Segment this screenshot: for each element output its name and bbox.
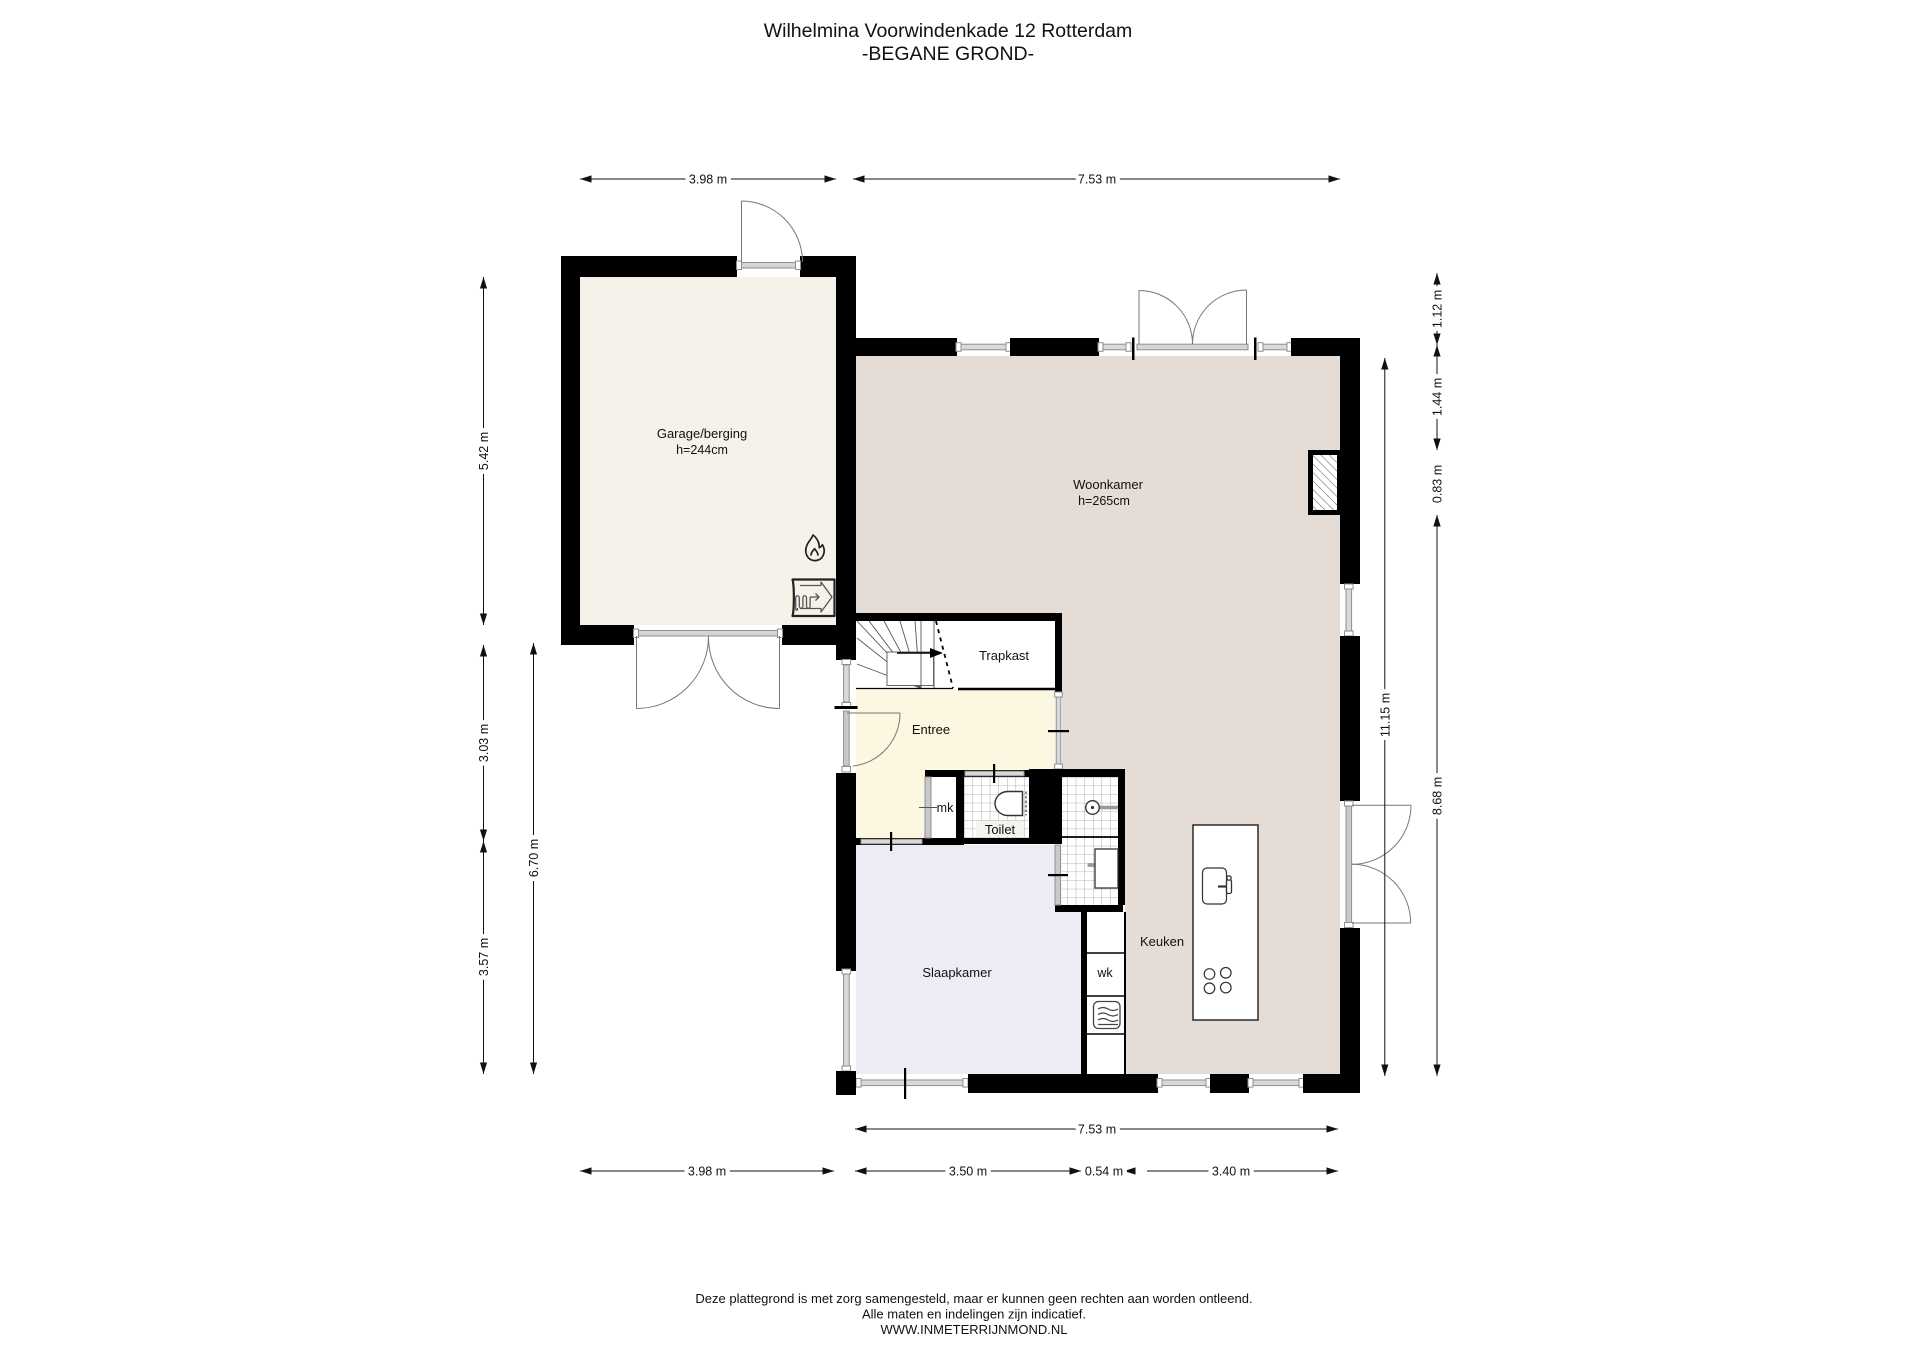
- svg-text:1.44 m: 1.44 m: [1431, 378, 1445, 416]
- svg-text:wk: wk: [1096, 966, 1113, 980]
- svg-text:Woonkamer: Woonkamer: [1073, 477, 1144, 492]
- svg-text:8.68 m: 8.68 m: [1431, 777, 1445, 815]
- svg-text:Alle maten en indelingen zijn: Alle maten en indelingen zijn indicatief…: [862, 1307, 1086, 1322]
- svg-text:3.98 m: 3.98 m: [688, 1165, 726, 1179]
- svg-text:WWW.INMETERRIJNMOND.NL: WWW.INMETERRIJNMOND.NL: [880, 1322, 1067, 1337]
- svg-text:Entree: Entree: [912, 722, 950, 737]
- svg-text:3.57 m: 3.57 m: [477, 938, 491, 976]
- svg-text:11.15 m: 11.15 m: [1378, 693, 1392, 737]
- svg-text:Slaapkamer: Slaapkamer: [922, 965, 992, 980]
- svg-text:Deze plattegrond is met zorg s: Deze plattegrond is met zorg samengestel…: [695, 1291, 1252, 1306]
- svg-text:7.53 m: 7.53 m: [1078, 173, 1116, 187]
- svg-text:1.12 m: 1.12 m: [1431, 290, 1445, 328]
- svg-text:6.70 m: 6.70 m: [527, 839, 541, 877]
- svg-text:7.53 m: 7.53 m: [1078, 1123, 1116, 1137]
- svg-text:5.42 m: 5.42 m: [477, 432, 491, 470]
- svg-text:h=265cm: h=265cm: [1078, 494, 1130, 508]
- svg-text:-BEGANE GROND-: -BEGANE GROND-: [862, 43, 1034, 65]
- svg-text:Wilhelmina Voorwindenkade 12 R: Wilhelmina Voorwindenkade 12 Rotterdam: [764, 20, 1133, 42]
- svg-text:3.98 m: 3.98 m: [689, 173, 727, 187]
- svg-text:Trapkast: Trapkast: [979, 648, 1029, 663]
- svg-text:h=244cm: h=244cm: [676, 443, 728, 457]
- svg-text:3.50 m: 3.50 m: [949, 1165, 987, 1179]
- svg-text:3.40 m: 3.40 m: [1212, 1165, 1250, 1179]
- svg-text:Keuken: Keuken: [1140, 934, 1184, 949]
- svg-text:mk: mk: [937, 801, 954, 815]
- svg-text:Toilet: Toilet: [985, 822, 1016, 837]
- svg-text:0.54 m: 0.54 m: [1085, 1165, 1123, 1179]
- svg-text:3.03 m: 3.03 m: [477, 724, 491, 762]
- svg-text:0.83 m: 0.83 m: [1431, 465, 1445, 503]
- svg-text:Garage/berging: Garage/berging: [657, 426, 747, 441]
